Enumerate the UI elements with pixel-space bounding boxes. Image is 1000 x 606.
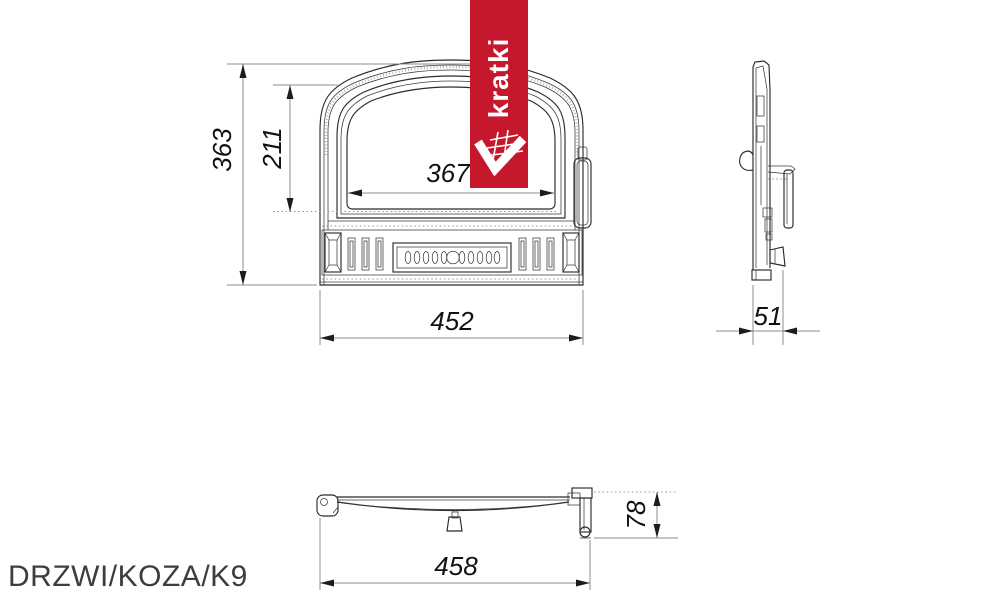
dim-side-depth: 51 <box>716 270 820 345</box>
dim-value-458: 458 <box>434 551 478 581</box>
kratki-logo-icon <box>470 129 528 185</box>
kratki-banner: kratki <box>470 0 528 188</box>
dim-value-211: 211 <box>257 127 287 169</box>
dim-value-367: 367 <box>426 158 471 188</box>
brand-name: kratki <box>483 38 515 119</box>
dim-value-363: 363 <box>207 128 237 172</box>
dim-value-51: 51 <box>754 301 783 331</box>
side-view <box>740 61 795 280</box>
product-code: DRZWI/KOZA/K9 <box>8 560 248 594</box>
technical-drawing-page: 363 211 367 452 <box>0 0 1000 606</box>
dim-bottom-depth: 78 <box>594 492 678 538</box>
bottom-view <box>317 488 592 538</box>
dim-front-overall-width: 452 <box>320 290 583 345</box>
dim-value-452: 452 <box>430 306 474 336</box>
dim-value-78: 78 <box>621 500 651 529</box>
dim-bottom-width: 458 <box>320 518 590 590</box>
